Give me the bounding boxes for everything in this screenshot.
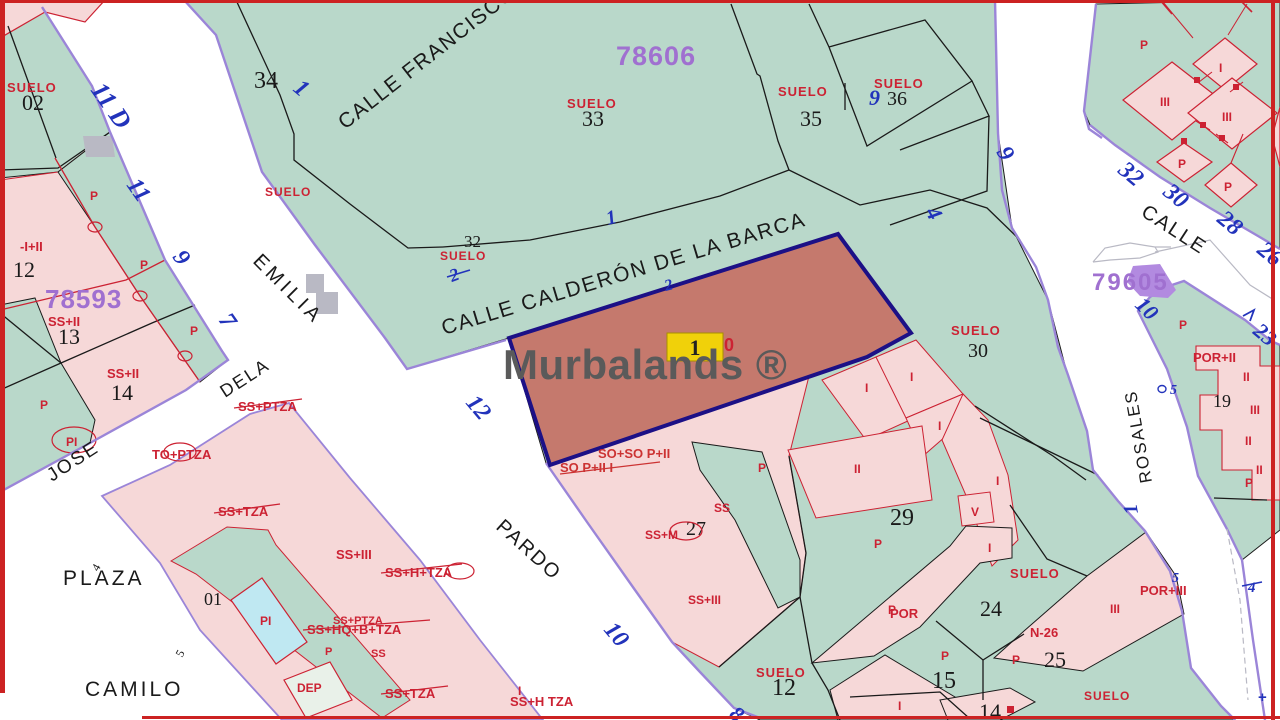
svg-text:4: 4: [1247, 580, 1256, 596]
svg-text:PI: PI: [260, 614, 271, 628]
svg-text:SS+M: SS+M: [645, 528, 678, 542]
svg-text:5: 5: [1172, 571, 1179, 586]
svg-text:01: 01: [204, 589, 222, 609]
svg-text:P: P: [90, 189, 98, 203]
svg-text:14: 14: [111, 380, 133, 405]
svg-text:P: P: [758, 461, 766, 475]
svg-text:SUELO: SUELO: [1084, 689, 1130, 703]
svg-text:POR+III: POR+III: [1140, 583, 1187, 598]
svg-text:SUELO: SUELO: [265, 185, 311, 199]
svg-text:SUELO: SUELO: [7, 80, 57, 95]
svg-text:25: 25: [1044, 647, 1066, 672]
svg-text:II: II: [1256, 463, 1263, 477]
svg-text:78593: 78593: [45, 284, 122, 314]
svg-text:V: V: [971, 505, 979, 519]
svg-text:SUELO: SUELO: [567, 96, 617, 111]
svg-text:P: P: [190, 324, 198, 338]
svg-text:POR+II: POR+II: [1193, 350, 1236, 365]
svg-text:III: III: [1222, 110, 1232, 124]
svg-text:SS+II: SS+II: [107, 366, 139, 381]
svg-text:Murbalands ®: Murbalands ®: [503, 341, 787, 388]
svg-text:SUELO: SUELO: [778, 84, 828, 99]
svg-text:34: 34: [254, 68, 278, 94]
svg-text:II: II: [1245, 434, 1252, 448]
svg-text:SUELO: SUELO: [951, 323, 1001, 338]
svg-text:SUELO: SUELO: [440, 249, 486, 263]
svg-text:P: P: [874, 537, 882, 551]
svg-text:SS+H+TZA: SS+H+TZA: [385, 565, 453, 580]
svg-text:I: I: [938, 419, 941, 433]
svg-text:P: P: [1012, 653, 1020, 667]
svg-text:SO+SO P+II: SO+SO P+II: [598, 446, 670, 461]
svg-text:35: 35: [800, 106, 822, 131]
svg-text:24: 24: [980, 596, 1002, 621]
svg-text:N-26: N-26: [1030, 625, 1058, 640]
svg-text:36: 36: [887, 88, 907, 110]
svg-text:SS: SS: [371, 648, 386, 660]
svg-text:I: I: [865, 381, 868, 395]
svg-text:I: I: [988, 541, 991, 555]
svg-text:SS: SS: [714, 501, 730, 515]
svg-text:P: P: [40, 398, 48, 412]
svg-text:P: P: [1178, 157, 1186, 171]
svg-text:I: I: [1219, 61, 1222, 75]
svg-text:30: 30: [968, 340, 988, 362]
svg-text:P: P: [1224, 180, 1232, 194]
svg-text:P: P: [1245, 476, 1253, 490]
svg-text:15: 15: [932, 668, 956, 694]
svg-text:27: 27: [686, 518, 706, 540]
svg-text:SS+III: SS+III: [336, 547, 372, 562]
svg-text:SS+HQ+B+TZA: SS+HQ+B+TZA: [307, 622, 402, 637]
svg-text:III: III: [1250, 403, 1260, 417]
svg-text:I: I: [910, 370, 913, 384]
svg-text:II: II: [854, 462, 861, 476]
svg-text:SUELO: SUELO: [1010, 566, 1060, 581]
svg-text:TO+PTZA: TO+PTZA: [152, 447, 212, 462]
svg-text:P: P: [941, 649, 949, 663]
svg-text:I: I: [518, 684, 521, 698]
svg-text:SUELO: SUELO: [756, 665, 806, 680]
svg-text:DEP: DEP: [297, 681, 322, 695]
svg-text:78606: 78606: [616, 41, 696, 71]
svg-text:III: III: [1160, 95, 1170, 109]
svg-text:-I+II: -I+II: [20, 239, 43, 254]
svg-text:III: III: [1110, 602, 1120, 616]
svg-text:P: P: [1140, 38, 1148, 52]
svg-text:P: P: [1179, 318, 1187, 332]
svg-text:II: II: [1243, 370, 1250, 384]
svg-text:SS+II: SS+II: [48, 314, 80, 329]
svg-text:5: 5: [1170, 383, 1177, 398]
svg-text:I: I: [898, 699, 901, 713]
svg-text:PI: PI: [66, 435, 77, 449]
svg-text:CAMILO: CAMILO: [85, 678, 184, 701]
svg-text:79605: 79605: [1092, 269, 1169, 296]
svg-text:P: P: [888, 603, 896, 617]
svg-text:PLAZA: PLAZA: [63, 567, 145, 590]
svg-text:I: I: [996, 474, 999, 488]
svg-text:P: P: [140, 258, 148, 272]
svg-text:P: P: [325, 646, 332, 658]
svg-text:SUELO: SUELO: [874, 76, 924, 91]
svg-text:12: 12: [13, 257, 35, 282]
svg-text:SS+III: SS+III: [688, 593, 721, 607]
svg-text:29: 29: [890, 505, 914, 531]
svg-text:+: +: [1258, 689, 1267, 706]
svg-text:19: 19: [1213, 391, 1231, 411]
